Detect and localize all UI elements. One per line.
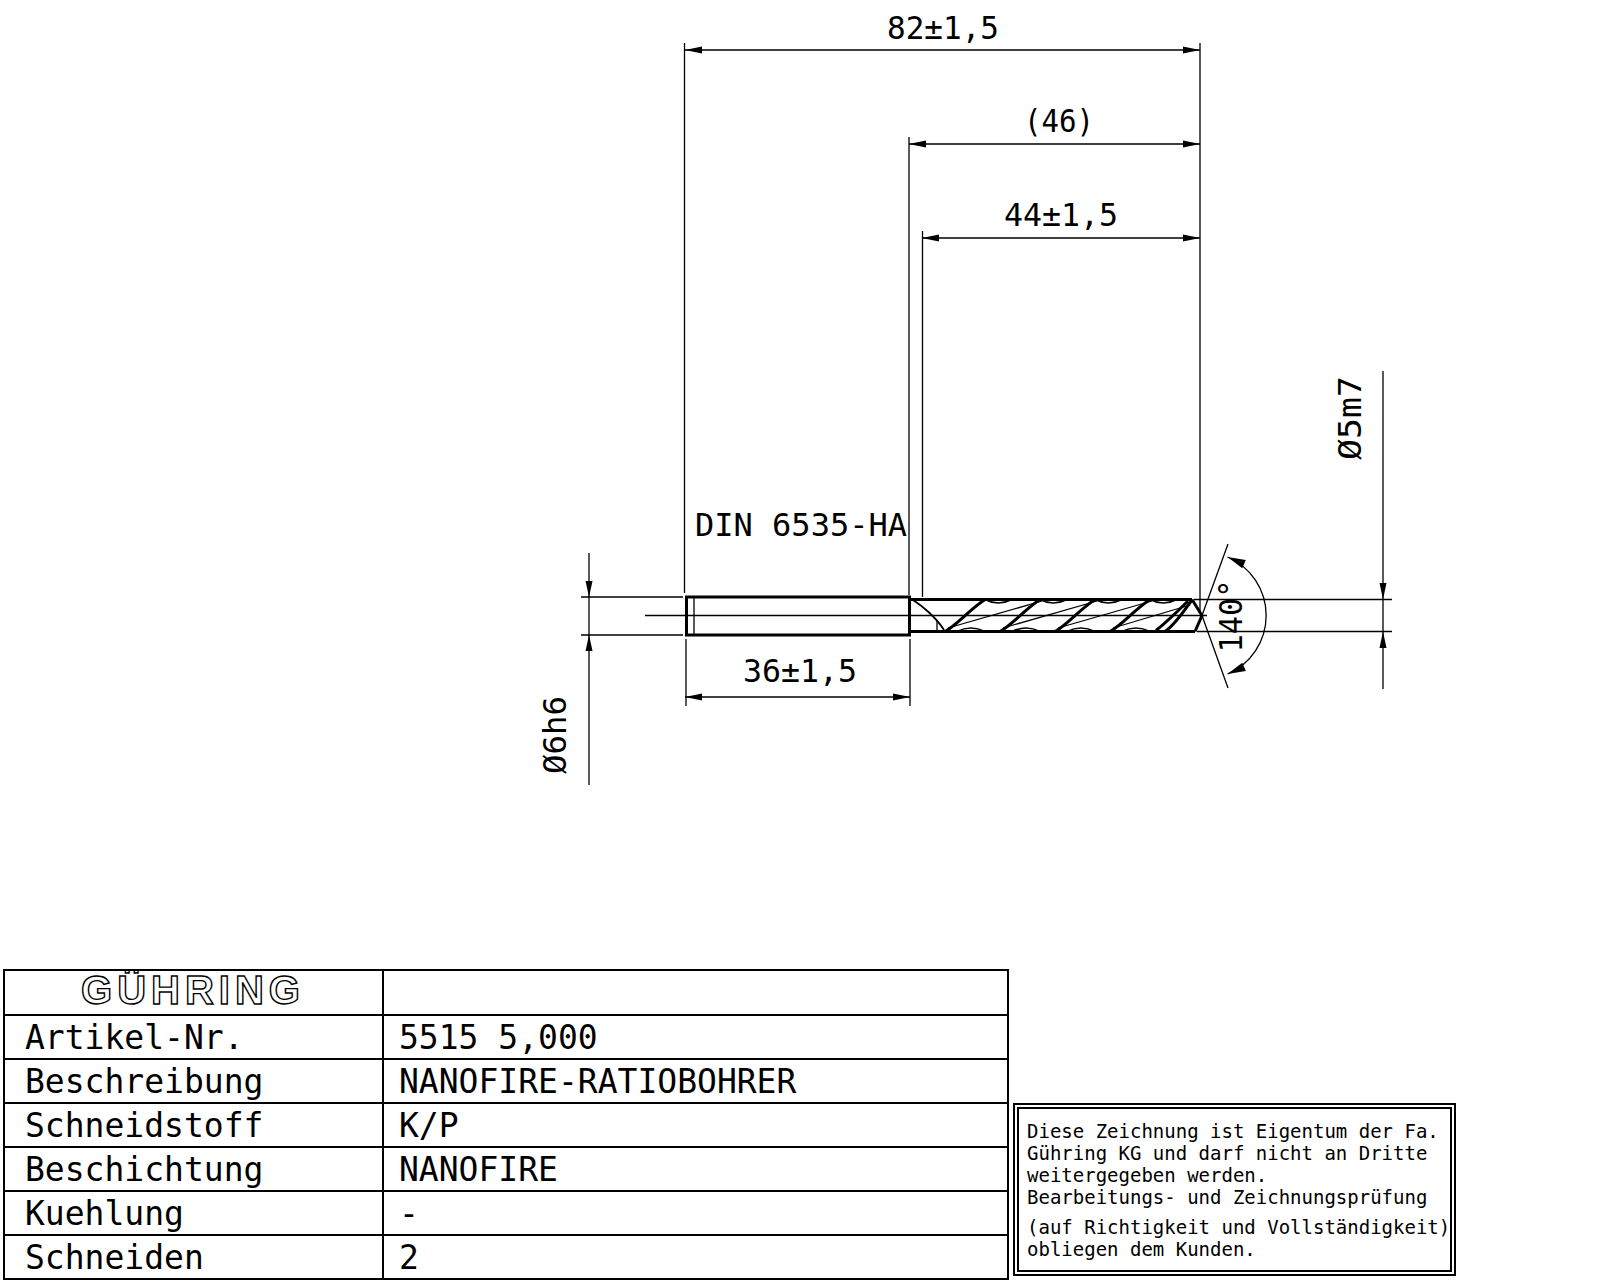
note-line: weitergegeben werden. bbox=[1027, 1164, 1446, 1186]
row-value: NANOFIRE bbox=[383, 1147, 1008, 1191]
row-label: Schneidstoff bbox=[4, 1103, 383, 1147]
note-line: Diese Zeichnung ist Eigentum der Fa. bbox=[1027, 1120, 1446, 1142]
table-row: Schneidstoff K/P bbox=[4, 1103, 1008, 1147]
note-line: Gühring KG und darf nicht an Dritte bbox=[1027, 1142, 1446, 1164]
article-info-table: GÜHRING Artikel-Nr. 5515 5,000 Beschreib… bbox=[3, 969, 1009, 1280]
table-row: Artikel-Nr. 5515 5,000 bbox=[4, 1015, 1008, 1059]
dimension-flute-reference: (46) bbox=[909, 102, 1200, 595]
dim-text-point-angle: 140° bbox=[1212, 580, 1250, 653]
dim-text-flute-length: 44±1,5 bbox=[1004, 196, 1118, 234]
ownership-note-box: Diese Zeichnung ist Eigentum der Fa. Güh… bbox=[1013, 1103, 1456, 1276]
row-value: 2 bbox=[383, 1235, 1008, 1279]
row-value: NANOFIRE-RATIOBOHRER bbox=[383, 1059, 1008, 1103]
dim-text-shank-length: 36±1,5 bbox=[743, 652, 857, 690]
dim-text-overall-length: 82±1,5 bbox=[887, 9, 999, 47]
note-line: Bearbeitungs- und Zeichnungsprüfung bbox=[1027, 1186, 1446, 1208]
table-row-logo: GÜHRING bbox=[4, 970, 1008, 1015]
drawing-sheet: 82±1,5 (46) 44±1,5 36±1,5 bbox=[0, 0, 1600, 1280]
row-label: Schneiden bbox=[4, 1235, 383, 1279]
ownership-note-inner: Diese Zeichnung ist Eigentum der Fa. Güh… bbox=[1017, 1107, 1452, 1272]
dimension-flute-length: 44±1,5 bbox=[922, 196, 1200, 597]
row-value: 5515 5,000 bbox=[383, 1015, 1008, 1059]
note-line: obliegen dem Kunden. bbox=[1027, 1238, 1446, 1260]
dim-text-flute-reference: (46) bbox=[1024, 102, 1094, 140]
shank-standard-label: DIN 6535-HA bbox=[695, 506, 907, 544]
row-label: Beschreibung bbox=[4, 1059, 383, 1103]
row-value: K/P bbox=[383, 1103, 1008, 1147]
table-row: Beschreibung NANOFIRE-RATIOBOHRER bbox=[4, 1059, 1008, 1103]
table-row: Schneiden 2 bbox=[4, 1235, 1008, 1279]
dim-text-drill-diameter: Ø5m7 bbox=[1331, 376, 1369, 460]
table-row: Kuehlung - bbox=[4, 1191, 1008, 1235]
dim-text-shank-diameter: Ø6h6 bbox=[536, 696, 574, 774]
brand-logo-text: GÜHRING bbox=[81, 971, 305, 1009]
row-label: Kuehlung bbox=[4, 1191, 383, 1235]
brand-logo-cell: GÜHRING bbox=[4, 970, 383, 1015]
dimension-point-angle: 140° bbox=[1202, 544, 1266, 688]
row-label: Beschichtung bbox=[4, 1147, 383, 1191]
logo-row-empty-cell bbox=[383, 970, 1008, 1015]
row-value: - bbox=[383, 1191, 1008, 1235]
table-row: Beschichtung NANOFIRE bbox=[4, 1147, 1008, 1191]
dimension-shank-length: 36±1,5 bbox=[685, 639, 910, 706]
note-line: (auf Richtigkeit und Vollständigkeit) bbox=[1027, 1216, 1446, 1238]
dimension-shank-diameter: Ø6h6 bbox=[536, 553, 683, 785]
guehring-logo: GÜHRING bbox=[6, 971, 381, 1009]
row-label: Artikel-Nr. bbox=[4, 1015, 383, 1059]
